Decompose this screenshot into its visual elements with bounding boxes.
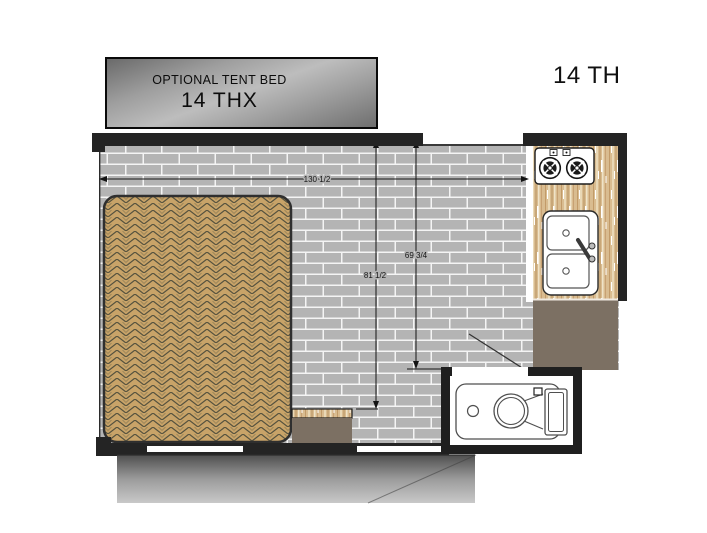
- cabinet-right: [533, 300, 618, 370]
- wood-step-strip: [292, 409, 352, 418]
- sink-icon: [543, 211, 598, 295]
- bed-mattress: [104, 196, 291, 442]
- counter-left-gap: [526, 146, 534, 302]
- dim-length-right: 69 3/4: [405, 251, 428, 260]
- tent-bed-label: OPTIONAL TENT BED: [152, 73, 286, 87]
- tent-bed-model: 14 THX: [181, 89, 258, 113]
- floor-cutout: [580, 370, 640, 454]
- dim-overall-width: 130 1/2: [304, 175, 331, 184]
- toilet-room: [441, 367, 582, 454]
- cabinet-center: [292, 418, 352, 447]
- stove-icon: [535, 148, 594, 184]
- model-label: 14 TH: [553, 62, 620, 90]
- bumper-step: [117, 455, 476, 503]
- tent-bed-box: OPTIONAL TENT BED 14 THX: [105, 57, 378, 129]
- toilet-icon: [456, 384, 567, 439]
- dim-length-left: 81 1/2: [364, 271, 387, 280]
- floorplan-page: 130 1/2 81 1/2 69 3/4: [0, 0, 707, 533]
